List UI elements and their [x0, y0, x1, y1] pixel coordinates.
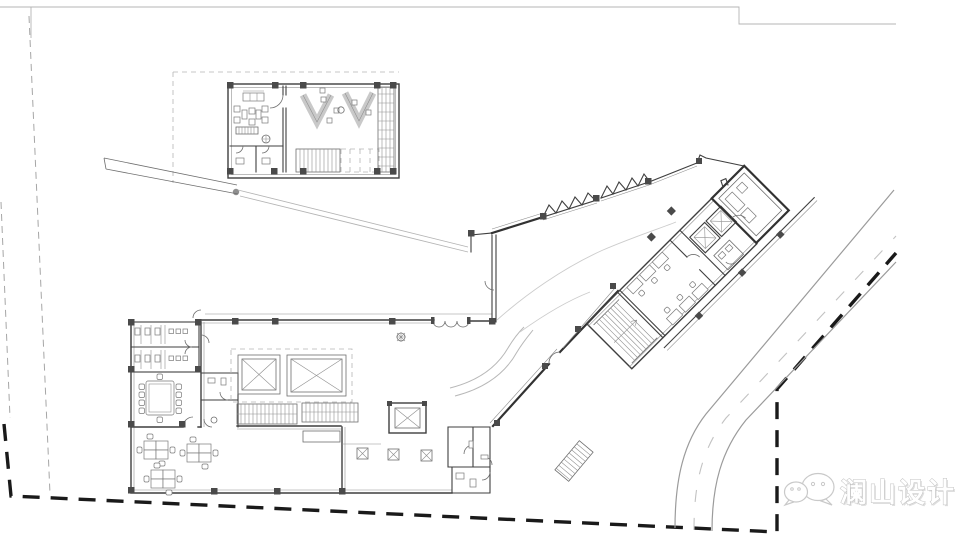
facade-columns [468, 158, 702, 237]
main-hall-block [128, 235, 496, 495]
exterior-stair-hatch [555, 441, 593, 482]
entry-steps [237, 403, 358, 424]
floor-plan-drawing: 澜山设计 澜山设计 [0, 0, 960, 542]
floor-plan-sheet: 澜山设计 澜山设计 [0, 0, 960, 542]
wechat-bubbles-icon [785, 474, 835, 506]
gallery-displays [303, 88, 373, 123]
conference-room [131, 374, 201, 427]
plant-symbol [396, 332, 406, 342]
service-rooms [201, 373, 238, 427]
watermark-text: 澜山设计 [840, 478, 956, 509]
skylight-boxes [231, 349, 352, 402]
atrium-diagonal-wall [490, 283, 618, 426]
entrance-pavilion [173, 72, 399, 195]
hall-columns-x [357, 448, 432, 461]
main-entrance-doors [431, 317, 471, 327]
open-office-desks [137, 434, 218, 495]
hall-elevator [387, 401, 427, 433]
lounge-furniture [234, 91, 270, 143]
setback-lines [1, 16, 50, 494]
landscape [450, 206, 676, 481]
toilet-block [131, 322, 199, 372]
watermark: 澜山设计 澜山设计 [785, 474, 958, 511]
pavilion-stair [296, 149, 379, 172]
block-columns [128, 318, 496, 495]
sheet-border [0, 7, 896, 38]
corner-rooms [448, 427, 492, 493]
louver-band [378, 87, 394, 172]
pavilion-partition [270, 86, 286, 172]
wing-stair [589, 290, 665, 366]
office-wing [582, 143, 817, 378]
wing-desks [625, 234, 722, 331]
